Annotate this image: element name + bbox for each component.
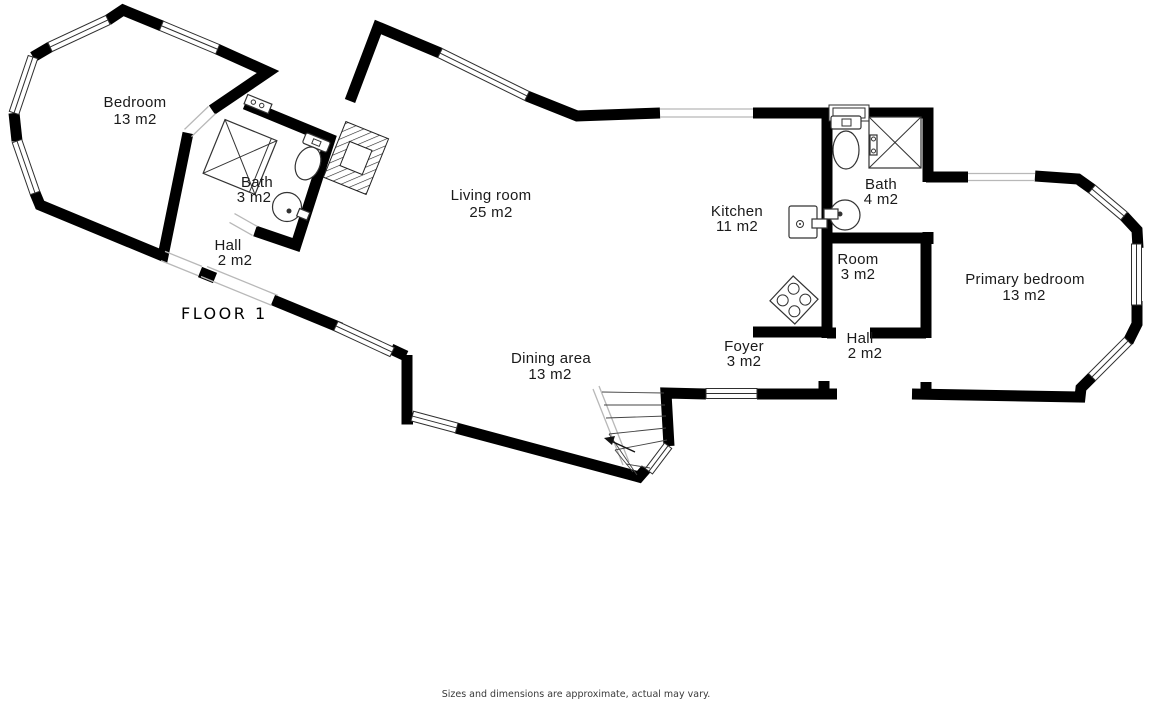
- window-icon: [706, 389, 757, 399]
- window-icon: [1132, 244, 1142, 305]
- room-area-foyer: 3 m2: [727, 353, 762, 370]
- room-label-bedroom: Bedroom: [104, 94, 167, 111]
- room-area-room-small: 3 m2: [841, 266, 876, 283]
- room-area-bath-small: 3 m2: [237, 189, 272, 206]
- windows: [9, 15, 1141, 474]
- window-icon: [334, 321, 394, 356]
- window-icon: [12, 139, 39, 194]
- room-area-dining-area: 13 m2: [528, 366, 571, 383]
- room-area-kitchen: 11 m2: [716, 218, 758, 235]
- sink-kitchen: [789, 206, 827, 238]
- window-icon: [438, 49, 529, 101]
- walls: [14, 10, 1138, 477]
- stove: [770, 276, 818, 324]
- disclaimer-text: Sizes and dimensions are approximate, ac…: [442, 689, 711, 700]
- room-area-primary-bedroom: 13 m2: [1002, 287, 1045, 304]
- room-label-primary-bedroom: Primary bedroom: [965, 271, 1085, 288]
- room-label-dining-area: Dining area: [511, 350, 591, 367]
- room-area-hall-right: 2 m2: [848, 345, 883, 362]
- room-label-living-room: Living room: [451, 187, 532, 204]
- window-icon: [411, 411, 458, 433]
- window-icon: [159, 21, 219, 54]
- shower-main-bath: [869, 117, 921, 168]
- window-icon: [48, 15, 110, 51]
- window-icon: [1089, 185, 1128, 220]
- window-icon: [9, 55, 37, 114]
- window-icon: [1088, 337, 1131, 380]
- room-area-bedroom: 13 m2: [113, 111, 156, 128]
- room-area-bath-main: 4 m2: [864, 191, 899, 208]
- floor-plan-page: Bedroom 13 m2 Bath 3 m2 Hall 2 m2 Living…: [0, 0, 1152, 711]
- toilet-main-bath: [831, 116, 861, 169]
- room-area-hall-left: 2 m2: [218, 252, 253, 269]
- floor-plan: Bedroom 13 m2 Bath 3 m2 Hall 2 m2 Living…: [0, 0, 1152, 711]
- window-icon: [645, 443, 671, 474]
- chimney: [323, 122, 388, 195]
- floor-label: FLOOR 1: [181, 304, 268, 323]
- room-area-living-room: 25 m2: [469, 204, 512, 221]
